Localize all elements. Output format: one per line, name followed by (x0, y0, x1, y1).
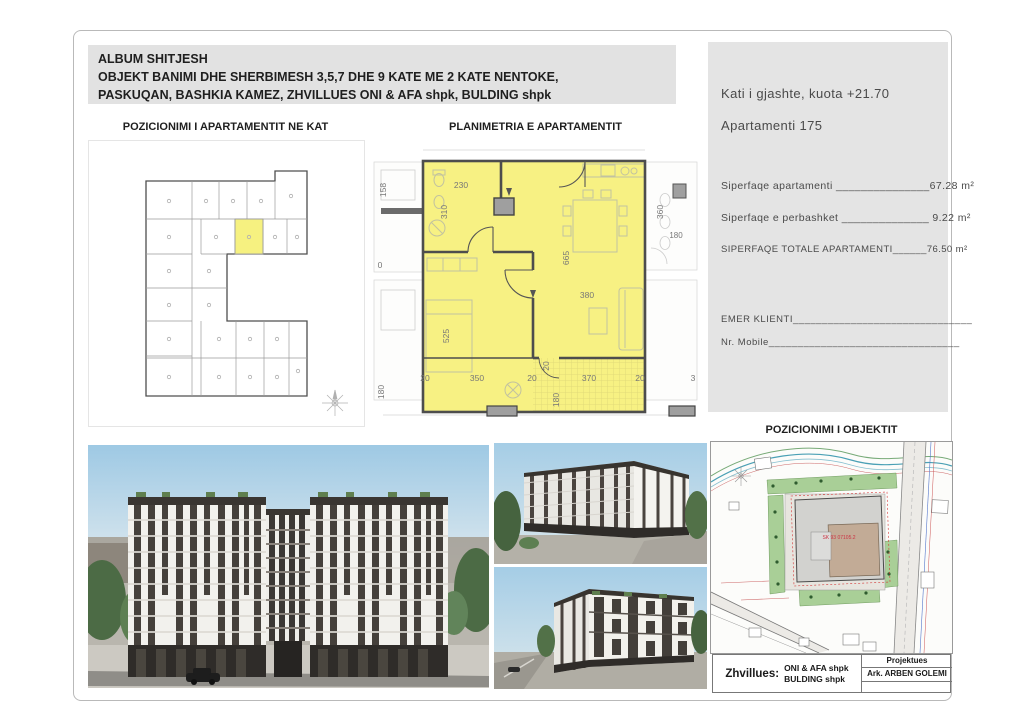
floor-position-title: POZICIONIMI I APARTAMENTIT NE KAT (88, 121, 363, 133)
right-tower (310, 492, 448, 677)
apartment-plan-drawing: 230 310 665 380 525 20 350 20 370 20 180… (373, 140, 698, 425)
svg-text:370: 370 (582, 373, 596, 383)
developer-names: ONI & AFA shpk BULDING shpk (784, 663, 849, 684)
render-corner-view-2-image (494, 567, 707, 689)
client-name-field: EMER KLIENTI____________________________… (721, 314, 972, 325)
svg-text:3: 3 (691, 373, 696, 383)
apartment-info-panel: Kati i gjashte, kuota +21.70 Apartamenti… (708, 42, 948, 412)
designer-name: Ark. ARBEN GOLEMI (862, 668, 952, 681)
developer-cell: Zhvillues: ONI & AFA shpk BULDING shpk (713, 655, 862, 692)
svg-text:20: 20 (420, 373, 430, 383)
svg-text:360: 360 (655, 205, 665, 219)
render-front-view (88, 445, 489, 688)
site-location-map: SK 93 07105.2 (710, 441, 953, 654)
svg-text:525: 525 (441, 329, 451, 343)
cadastral-label: SK 93 07105.2 (822, 535, 855, 541)
svg-text:310: 310 (439, 205, 449, 219)
svg-text:158: 158 (378, 183, 388, 197)
apartment-plan: 230 310 665 380 525 20 350 20 370 20 180… (373, 140, 698, 425)
client-mobile-field: Nr. Mobile______________________________… (721, 337, 960, 348)
album-header: ALBUM SHITJESH OBJEKT BANIMI DHE SHERBIM… (88, 45, 676, 104)
object-position-title: POZICIONIMI I OBJEKTIT (710, 424, 953, 436)
designer-title: Projektues (862, 655, 952, 668)
svg-text:20: 20 (541, 361, 551, 371)
left-tower (128, 492, 266, 677)
album-title: ALBUM SHITJESH (98, 50, 666, 68)
area-apartment-line: Siperfaqe apartamenti _______________67.… (721, 180, 974, 192)
apartment-number: Apartamenti 175 (721, 118, 822, 133)
object-description-line1: OBJEKT BANIMI DHE SHERBIMESH 3,5,7 DHE 9… (98, 68, 666, 86)
designer-cells: Projektues Ark. ARBEN GOLEMI (862, 655, 952, 692)
compass-rose-icon (322, 390, 348, 416)
svg-text:20: 20 (635, 373, 645, 383)
svg-text:180: 180 (669, 231, 683, 240)
drawing-title-block: Zhvillues: ONI & AFA shpk BULDING shpk P… (712, 654, 951, 693)
render-front-view-image (88, 445, 489, 688)
shaft (494, 198, 514, 215)
svg-text:20: 20 (527, 373, 537, 383)
render-corner-view-1 (494, 443, 707, 564)
render-corner-view-2 (494, 567, 707, 689)
object-description-line2: PASKUQAN, BASHKIA KAMEZ, ZHVILLUES ONI &… (98, 86, 666, 104)
highlighted-apartment-cell (235, 219, 263, 254)
svg-text:350: 350 (470, 373, 484, 383)
floor-position-plan (88, 140, 365, 427)
developer-label: Zhvillues: (725, 668, 779, 680)
svg-text:180: 180 (551, 393, 561, 407)
svg-text:0: 0 (378, 260, 383, 270)
floor-info: Kati i gjashte, kuota +21.70 (721, 86, 889, 101)
svg-text:665: 665 (561, 251, 571, 265)
site-map-drawing: SK 93 07105.2 (711, 442, 952, 653)
area-total-line: SIPERFAQE TOTALE APARTAMENTI______76.50 … (721, 244, 968, 255)
window-sill (487, 406, 517, 416)
neighbor-window-sill (669, 406, 695, 416)
render-corner-view-1-image (494, 443, 707, 564)
apartment-plan-title: PLANIMETRIA E APARTAMENTIT (373, 121, 698, 133)
floor-plan-drawing (89, 141, 364, 426)
svg-text:380: 380 (580, 290, 594, 300)
svg-text:180: 180 (376, 385, 386, 399)
designer-empty-row (862, 682, 952, 694)
svg-text:230: 230 (454, 180, 468, 190)
area-common-line: Siperfaqe e perbashket ______________ 9.… (721, 212, 971, 224)
